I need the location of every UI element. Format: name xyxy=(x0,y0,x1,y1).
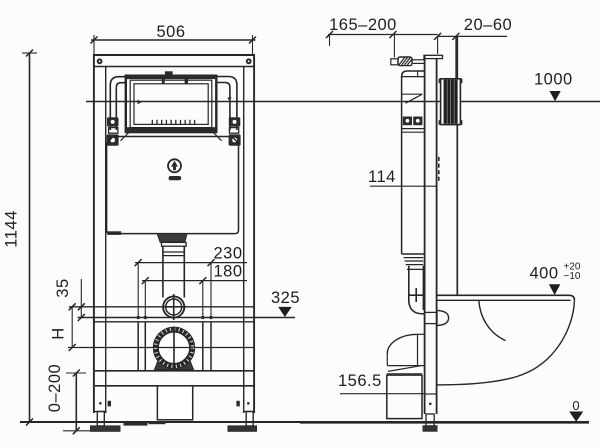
svg-text:400: 400 xyxy=(530,265,559,283)
svg-text:35: 35 xyxy=(54,278,72,297)
svg-text:20–60: 20–60 xyxy=(464,16,512,34)
svg-text:180: 180 xyxy=(214,263,243,281)
svg-text:−10: −10 xyxy=(564,271,581,282)
svg-text:114: 114 xyxy=(368,168,396,186)
svg-text:H: H xyxy=(50,327,68,339)
svg-text:0: 0 xyxy=(572,398,579,413)
svg-text:0–200: 0–200 xyxy=(46,364,64,412)
svg-text:230: 230 xyxy=(214,245,243,263)
svg-text:1144: 1144 xyxy=(3,210,21,247)
svg-text:165–200: 165–200 xyxy=(329,16,397,34)
svg-text:1000: 1000 xyxy=(534,71,573,89)
svg-text:156.5: 156.5 xyxy=(338,372,382,390)
svg-text:506: 506 xyxy=(156,23,185,41)
svg-text:325: 325 xyxy=(271,289,300,307)
